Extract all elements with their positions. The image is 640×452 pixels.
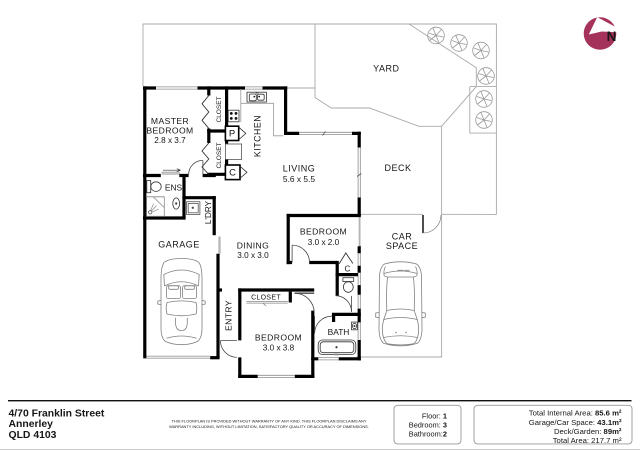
svg-text:BATH: BATH [328,327,350,337]
svg-text:SPACE: SPACE [386,241,418,251]
svg-text:WARRANTY INCLUDING, WITHOUT LI: WARRANTY INCLUDING, WITHOUT LIMITATION, … [169,424,369,429]
svg-text:CLOSET: CLOSET [216,142,223,168]
svg-text:YARD: YARD [373,64,399,74]
svg-text:2.8 x 3.7: 2.8 x 3.7 [154,136,186,145]
svg-text:KITCHEN: KITCHEN [252,115,262,157]
svg-text:CAR: CAR [392,232,413,242]
svg-text:CLOSET: CLOSET [251,295,281,302]
svg-text:Total Internal Area: 85.6 m²: Total Internal Area: 85.6 m² [529,409,622,418]
svg-text:C: C [229,168,236,179]
svg-text:DECK: DECK [384,163,411,173]
svg-text:THIS FLOORPLAN IS PROVIDED WIT: THIS FLOORPLAN IS PROVIDED WITHOUT WARRA… [172,418,367,423]
svg-text:Total Area: 217.7 m²: Total Area: 217.7 m² [553,436,622,445]
svg-text:Bathroom:2: Bathroom:2 [409,429,447,438]
svg-text:5.6 x 5.5: 5.6 x 5.5 [283,174,315,184]
svg-text:Bedroom: 3: Bedroom: 3 [409,421,447,430]
svg-text:LIVING: LIVING [283,164,316,174]
svg-text:N: N [607,29,617,44]
svg-text:3.0 x 2.0: 3.0 x 2.0 [308,238,340,247]
svg-text:Floor: 1: Floor: 1 [422,412,447,421]
svg-text:Garage/Car Space: 43.1m²: Garage/Car Space: 43.1m² [529,418,622,427]
svg-text:ENS: ENS [165,183,183,193]
svg-text:GARAGE: GARAGE [158,240,200,250]
svg-text:MASTER: MASTER [151,116,189,126]
svg-text:4/70 Franklin Street: 4/70 Franklin Street [9,409,105,420]
svg-text:3.0 x 3.0: 3.0 x 3.0 [237,251,269,260]
svg-text:Deck/Garden: 89m²: Deck/Garden: 89m² [554,427,622,436]
svg-text:ENTRY: ENTRY [223,300,233,331]
svg-text:L'DRY: L'DRY [204,200,213,224]
svg-text:C: C [345,265,351,274]
svg-text:CLOSET: CLOSET [216,96,223,122]
svg-text:Annerley: Annerley [9,419,54,430]
svg-text:DINING: DINING [237,241,269,251]
svg-text:3.0 x 3.8: 3.0 x 3.8 [263,344,295,353]
svg-text:BEDROOM: BEDROOM [300,227,347,237]
svg-text:QLD 4103: QLD 4103 [9,430,57,441]
svg-text:BEDROOM: BEDROOM [146,126,193,136]
svg-text:BEDROOM: BEDROOM [255,333,302,343]
svg-text:P: P [229,129,235,140]
